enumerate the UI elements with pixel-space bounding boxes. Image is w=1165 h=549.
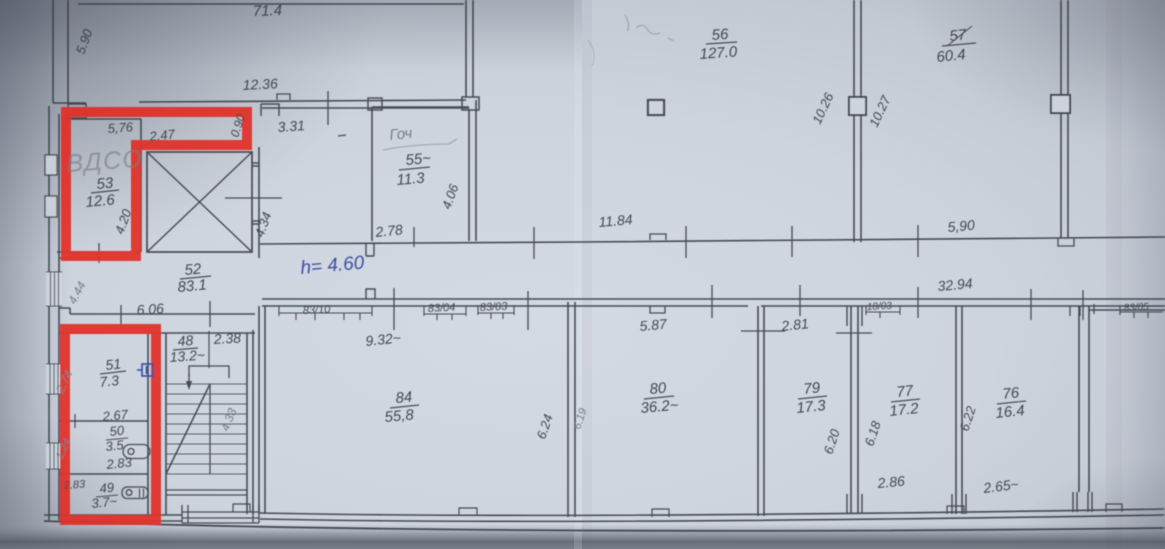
svg-text:127.0: 127.0 bbox=[699, 43, 738, 63]
svg-text:83/04: 83/04 bbox=[428, 302, 456, 315]
svg-text:5,76: 5,76 bbox=[107, 119, 134, 136]
svg-text:55~: 55~ bbox=[405, 150, 432, 169]
svg-text:80: 80 bbox=[649, 380, 668, 398]
svg-text:11.3: 11.3 bbox=[396, 170, 426, 189]
svg-text:6.06: 6.06 bbox=[136, 300, 165, 318]
svg-text:48: 48 bbox=[177, 332, 194, 349]
svg-text:11.84: 11.84 bbox=[598, 211, 633, 230]
svg-text:84: 84 bbox=[395, 389, 413, 407]
svg-text:5,90: 5,90 bbox=[947, 217, 976, 235]
svg-text:16.4: 16.4 bbox=[995, 402, 1026, 422]
svg-text:3.31: 3.31 bbox=[277, 117, 305, 135]
svg-text:50: 50 bbox=[109, 422, 126, 439]
svg-text:2.67: 2.67 bbox=[101, 407, 129, 424]
svg-text:36.2~: 36.2~ bbox=[640, 397, 680, 417]
svg-text:2.86: 2.86 bbox=[876, 473, 906, 491]
svg-text:3.7~: 3.7~ bbox=[91, 493, 118, 511]
svg-text:18/03: 18/03 bbox=[867, 301, 893, 313]
svg-text:17.2: 17.2 bbox=[889, 400, 920, 420]
svg-text:83.1: 83.1 bbox=[177, 277, 208, 296]
svg-text:32.94: 32.94 bbox=[937, 275, 974, 294]
svg-text:83/03: 83/03 bbox=[480, 301, 509, 314]
svg-text:2.47: 2.47 bbox=[148, 126, 176, 144]
svg-text:71.4: 71.4 bbox=[253, 2, 283, 20]
svg-text:83/05: 83/05 bbox=[1124, 302, 1150, 314]
svg-text:13.2~: 13.2~ bbox=[169, 347, 205, 365]
svg-text:76: 76 bbox=[1002, 384, 1021, 403]
svg-text:2.81: 2.81 bbox=[780, 315, 810, 334]
svg-text:3.5: 3.5 bbox=[105, 437, 125, 454]
svg-text:51: 51 bbox=[105, 355, 122, 373]
svg-text:79: 79 bbox=[803, 379, 822, 398]
svg-text:2.38: 2.38 bbox=[212, 330, 241, 347]
svg-text:2.83: 2.83 bbox=[62, 478, 86, 492]
svg-text:2.78: 2.78 bbox=[374, 221, 404, 240]
svg-text:60.4: 60.4 bbox=[936, 46, 967, 66]
svg-text:5.87: 5.87 bbox=[639, 316, 669, 334]
svg-text:77: 77 bbox=[896, 382, 915, 401]
svg-text:Гоч: Гоч bbox=[389, 125, 414, 144]
svg-text:12.6: 12.6 bbox=[85, 191, 116, 211]
svg-text:12.36: 12.36 bbox=[242, 75, 278, 93]
svg-text:83/10: 83/10 bbox=[303, 304, 332, 317]
svg-text:56: 56 bbox=[711, 26, 729, 44]
svg-text:17.3: 17.3 bbox=[796, 397, 827, 417]
svg-text:55,8: 55,8 bbox=[384, 406, 415, 426]
svg-text:ВДСО: ВДСО bbox=[65, 145, 144, 178]
svg-text:2.83: 2.83 bbox=[105, 454, 133, 472]
svg-text:7.3: 7.3 bbox=[99, 372, 120, 390]
